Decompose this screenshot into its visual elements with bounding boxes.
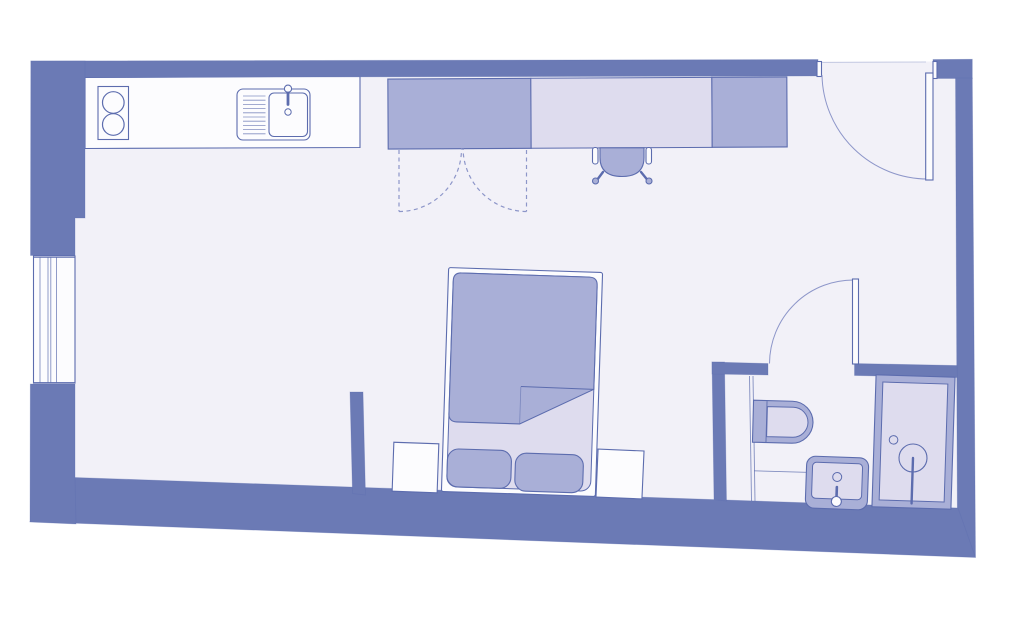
chair-armrest xyxy=(646,148,652,165)
floor-plan-canvas xyxy=(0,0,1024,628)
entrance-threshold xyxy=(822,62,926,63)
nightstand-left xyxy=(392,442,439,493)
entrance-jamb-right xyxy=(933,62,937,79)
wardrobe-right-cabinet xyxy=(712,77,787,147)
toilet xyxy=(752,400,813,444)
chair-caster xyxy=(646,178,652,184)
kitchen-sink xyxy=(237,85,310,140)
bathroom-door-leaf xyxy=(853,279,859,364)
wall-left-bottom xyxy=(30,384,76,524)
shower xyxy=(872,375,955,509)
floor-plan xyxy=(0,0,1024,628)
bed xyxy=(441,268,602,497)
shower-arm xyxy=(912,458,913,503)
chair-seat xyxy=(600,148,644,177)
entrance-door-leaf xyxy=(926,73,933,180)
toilet-bowl xyxy=(767,407,809,438)
wall-top xyxy=(31,60,818,78)
faucet-base xyxy=(284,85,291,92)
pillow xyxy=(447,449,512,489)
wall-right xyxy=(956,78,976,557)
cooktop xyxy=(98,87,129,140)
wall-bed-stub xyxy=(350,392,366,495)
wall-top-right xyxy=(933,59,972,78)
washbasin-drain xyxy=(833,472,842,481)
washbasin-faucet-base xyxy=(831,496,841,506)
pillow xyxy=(514,453,583,493)
wall-bathroom-partition xyxy=(712,362,727,501)
chair-caster xyxy=(593,178,599,184)
window xyxy=(34,256,76,383)
chair-armrest xyxy=(593,148,599,165)
wall-bathroom-stub-left xyxy=(712,362,768,375)
wardrobe-desk-unit xyxy=(388,77,787,149)
entrance-jamb-left xyxy=(817,62,822,77)
wardrobe xyxy=(388,78,531,149)
desk xyxy=(531,77,712,148)
nightstand-right xyxy=(596,449,644,499)
washbasin xyxy=(805,456,869,510)
